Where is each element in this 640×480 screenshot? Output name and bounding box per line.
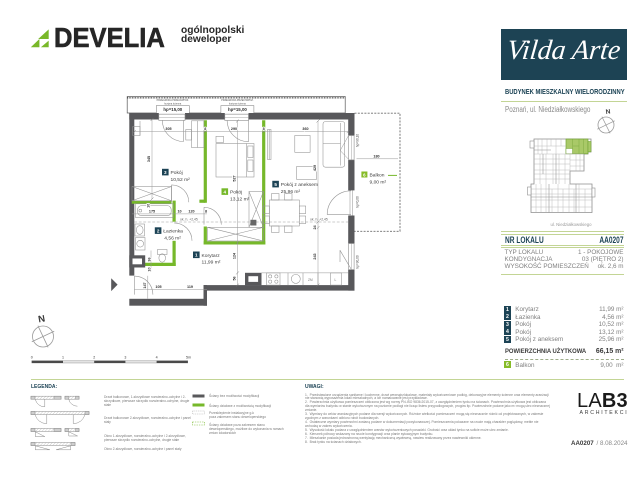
svg-text:hp=15,00: hp=15,00 [228, 107, 247, 112]
svg-text:Korytarz: Korytarz [202, 253, 221, 259]
svg-text:Pokój: Pokój [230, 190, 242, 196]
svg-text:290: 290 [231, 127, 237, 131]
svg-text:120: 120 [188, 210, 194, 214]
svg-text:kurtyna ścienna: kurtyna ścienna [229, 102, 246, 105]
svg-text:10: 10 [147, 204, 151, 208]
svg-text:8: 8 [204, 127, 206, 131]
svg-text:1: 1 [62, 356, 64, 360]
svg-text:10: 10 [147, 267, 151, 271]
svg-text:4: 4 [156, 356, 158, 360]
svg-text:105: 105 [155, 285, 161, 289]
svg-text:1: 1 [195, 253, 198, 258]
svg-text:hp=0,00: hp=0,00 [356, 196, 360, 208]
svg-text:4,56 m²: 4,56 m² [164, 235, 181, 241]
svg-text:N: N [37, 313, 46, 325]
svg-text:Pokój z aneksem: Pokój z aneksem [281, 182, 318, 188]
svg-text:3: 3 [164, 170, 167, 175]
svg-text:hp=90,10: hp=90,10 [356, 134, 360, 148]
svg-text:Łazienka: Łazienka [163, 229, 183, 235]
svg-text:2: 2 [93, 356, 95, 360]
svg-text:305: 305 [165, 127, 171, 131]
svg-text:ok. h. +2,45: ok. h. +2,45 [180, 218, 198, 222]
svg-text:5: 5 [274, 182, 277, 187]
svg-text:8: 8 [263, 127, 265, 131]
svg-text:ZM: ZM [308, 278, 313, 282]
svg-text:429: 429 [313, 165, 317, 171]
svg-text:119: 119 [187, 285, 193, 289]
svg-text:243: 243 [313, 253, 317, 259]
svg-text:345: 345 [147, 156, 151, 162]
svg-text:124: 124 [233, 252, 237, 259]
svg-text:kurtyna ścienna: kurtyna ścienna [164, 102, 181, 105]
svg-text:9,00 m²: 9,00 m² [370, 179, 387, 185]
svg-text:8: 8 [205, 210, 207, 214]
svg-text:175: 175 [149, 210, 155, 214]
svg-text:147: 147 [143, 282, 147, 288]
svg-text:11,99 m²: 11,99 m² [202, 260, 221, 266]
svg-text:36: 36 [147, 257, 151, 261]
svg-text:3: 3 [124, 356, 126, 360]
svg-text:4: 4 [224, 189, 227, 194]
svg-text:5m: 5m [186, 356, 191, 360]
svg-text:10,52 m²: 10,52 m² [171, 177, 191, 183]
svg-text:13,12 m²: 13,12 m² [230, 196, 250, 202]
svg-text:360: 360 [302, 127, 308, 131]
svg-text:527: 527 [233, 175, 237, 181]
svg-text:Pokój: Pokój [171, 170, 183, 176]
svg-text:hp=90,00: hp=90,00 [356, 255, 360, 269]
svg-text:10: 10 [177, 210, 181, 214]
svg-text:56: 56 [233, 276, 237, 280]
svg-text:0: 0 [31, 356, 33, 360]
svg-text:Balkon: Balkon [370, 173, 385, 179]
svg-text:24: 24 [313, 225, 317, 230]
svg-text:L: L [335, 278, 337, 282]
svg-text:25,96 m²: 25,96 m² [281, 189, 301, 195]
svg-text:2: 2 [157, 228, 160, 233]
svg-text:180: 180 [373, 154, 379, 158]
svg-text:hp=15,00: hp=15,00 [163, 107, 182, 112]
